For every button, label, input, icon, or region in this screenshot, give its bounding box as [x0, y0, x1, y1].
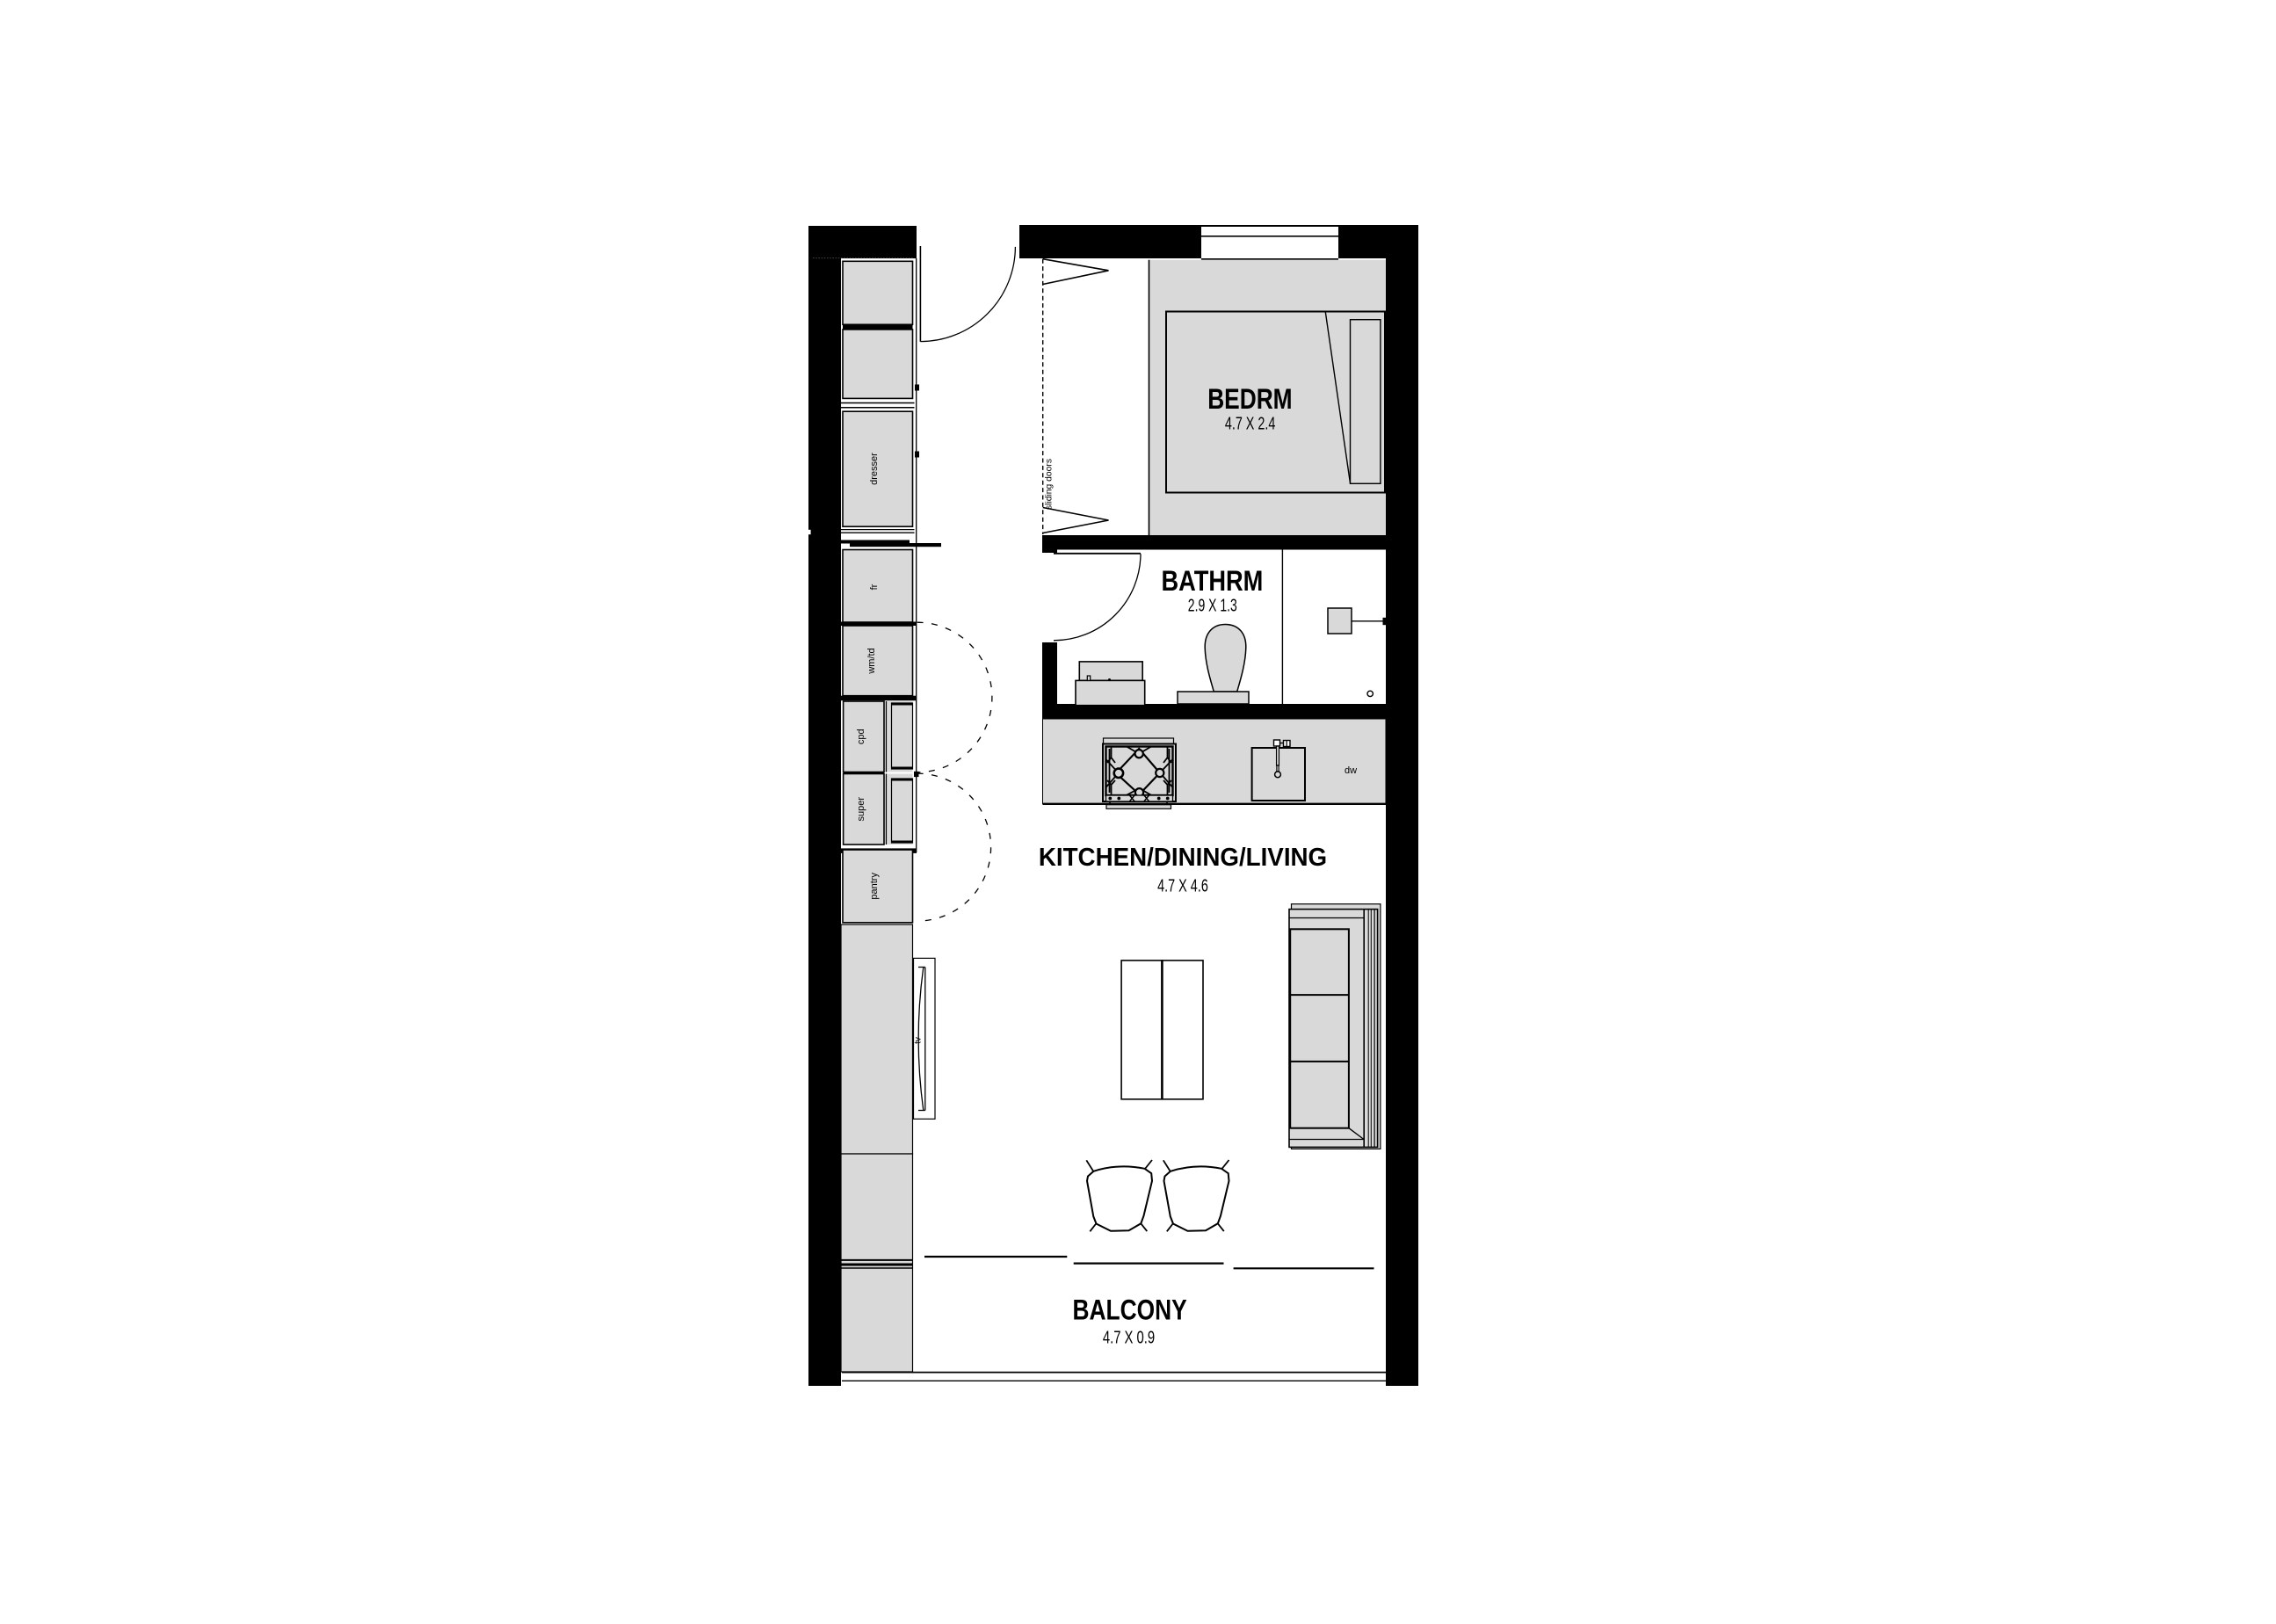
svg-text:fr: fr	[869, 584, 880, 590]
svg-text:cpd: cpd	[856, 729, 866, 744]
svg-text:BATHRM: BATHRM	[1161, 565, 1263, 597]
svg-text:pantry: pantry	[869, 873, 880, 900]
svg-text:wm/td: wm/td	[866, 648, 877, 674]
svg-text:BALCONY: BALCONY	[1073, 1294, 1187, 1326]
svg-text:4.7 X 4.6: 4.7 X 4.6	[1157, 876, 1208, 895]
svg-text:2.9 X 1.3: 2.9 X 1.3	[1188, 597, 1237, 616]
svg-text:BEDRM: BEDRM	[1207, 382, 1292, 415]
svg-text:dresser: dresser	[869, 453, 880, 485]
svg-text:super: super	[856, 797, 866, 822]
svg-text:4.7 X 2.4: 4.7 X 2.4	[1225, 414, 1276, 433]
svg-text:KITCHEN/DINING/LIVING: KITCHEN/DINING/LIVING	[1039, 843, 1327, 871]
svg-text:4.7 X 0.9: 4.7 X 0.9	[1103, 1329, 1155, 1348]
svg-text:tv: tv	[914, 1037, 924, 1044]
svg-text:dw: dw	[1345, 765, 1357, 776]
svg-text:sliding doors: sliding doors	[1045, 459, 1055, 510]
